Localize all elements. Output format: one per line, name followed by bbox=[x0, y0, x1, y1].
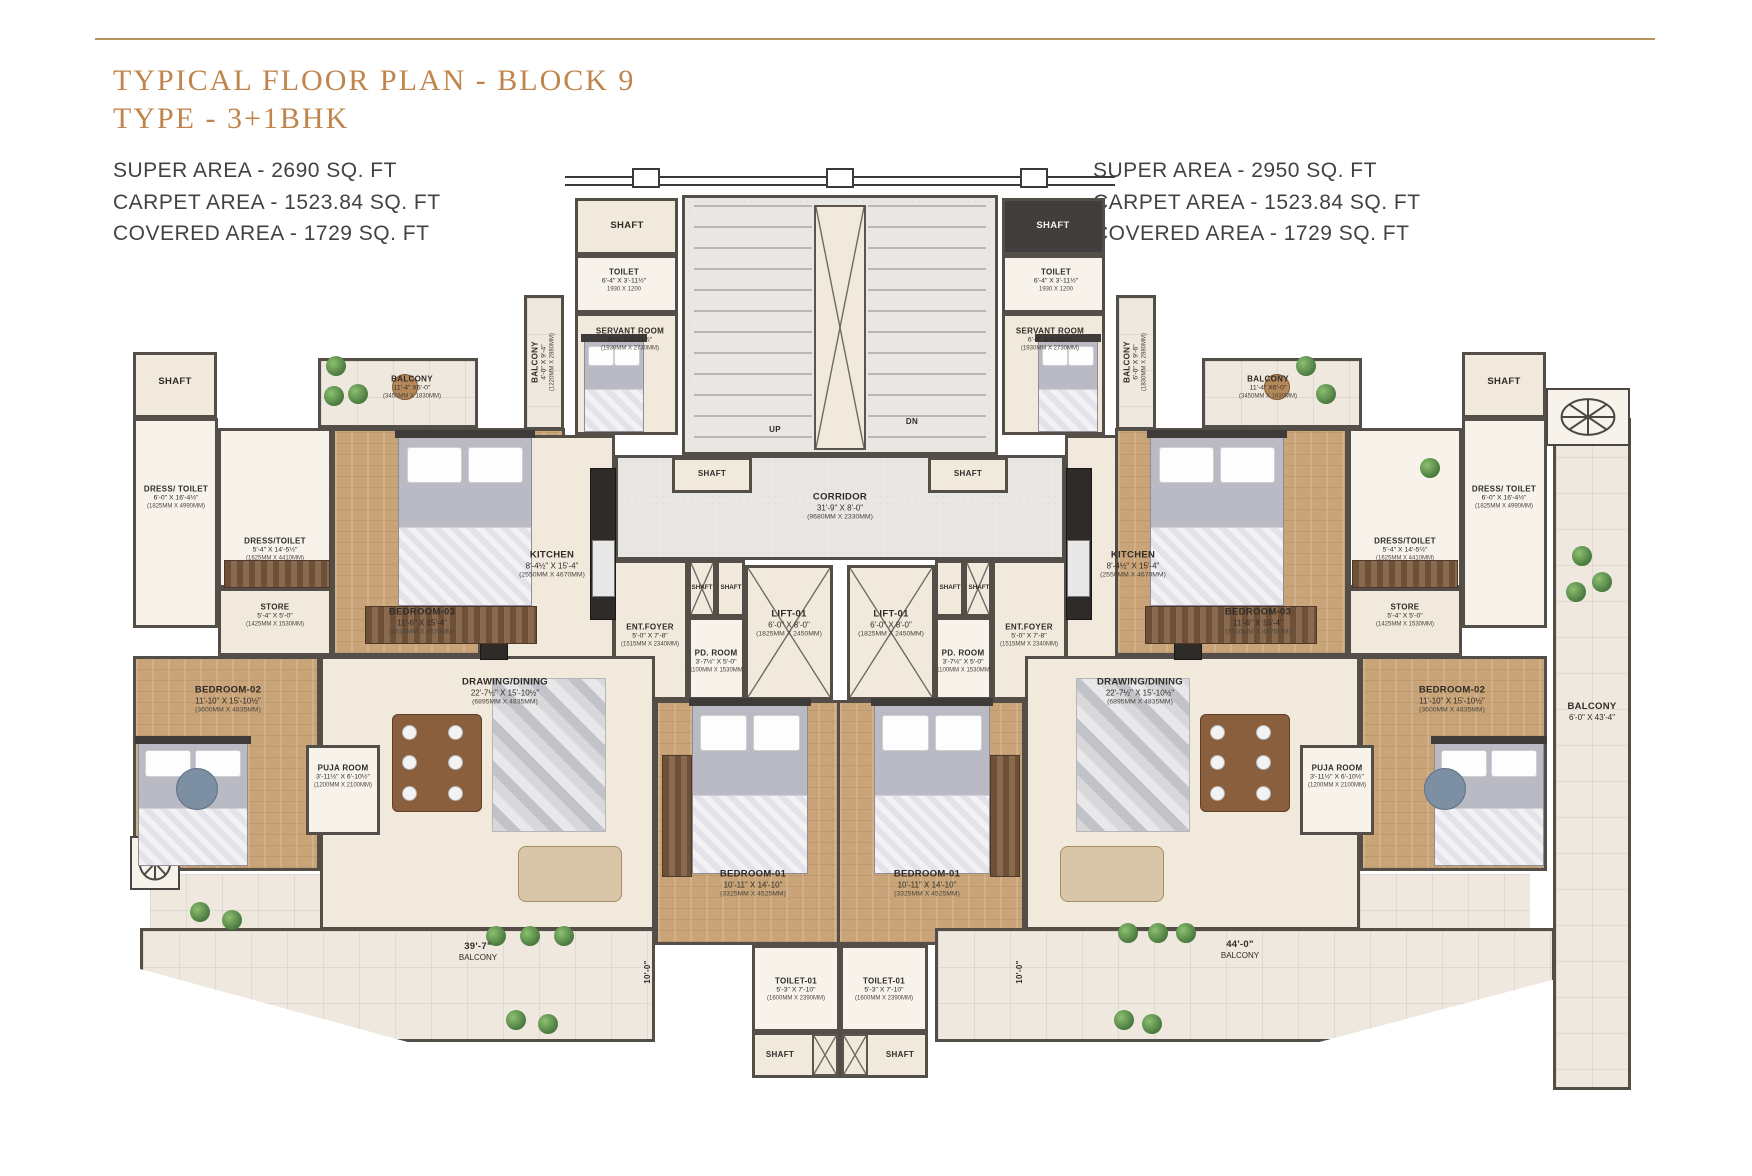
pillow bbox=[753, 715, 801, 751]
blanket bbox=[693, 795, 807, 873]
toilet-servant-right-label: TOILET6'-4" X 3'-11½"1930 X 1200 bbox=[1034, 268, 1078, 295]
bed-headboard bbox=[1431, 736, 1547, 744]
plant-icon bbox=[324, 386, 344, 406]
plant-icon bbox=[520, 926, 540, 946]
sofa bbox=[1060, 846, 1164, 902]
toilet-01-right-label: TOILET-015'-3" X 7'-10"(1600MM X 2390MM) bbox=[855, 977, 913, 1004]
shaft-cross bbox=[842, 1034, 868, 1076]
cornice-bracket bbox=[632, 168, 660, 188]
toilet-servant-left-label: TOILET6'-4" X 3'-11½"1930 X 1200 bbox=[602, 268, 646, 295]
lift-right-label: LIFT-016'-0" X 8'-0"(1825MM X 2450MM) bbox=[858, 608, 924, 639]
plate bbox=[402, 786, 417, 801]
shaft-far-right-label: SHAFT bbox=[1487, 376, 1520, 388]
dining-table bbox=[392, 714, 482, 812]
balcony-right-strip-label: BALCONY6'-0" X 43'-4" bbox=[1567, 701, 1616, 723]
shaft-far-left-label: SHAFT bbox=[158, 376, 191, 388]
shaft-corridor-left-label: SHAFT bbox=[698, 469, 726, 479]
terrace-right-dim: 44'-0"BALCONY bbox=[1221, 939, 1259, 961]
terrace-left bbox=[140, 928, 655, 1042]
ent-foyer-left-label: ENT.FOYER5'-0" X 7'-8"(1515MM X 2340MM) bbox=[621, 623, 679, 650]
plate bbox=[1210, 755, 1225, 770]
shaft-cross bbox=[812, 1034, 838, 1076]
blanket bbox=[399, 527, 531, 605]
dress-toilet-b-left-label: DRESS/TOILET5'-4" X 14'-5½"(1625MM X 441… bbox=[244, 537, 306, 564]
stove bbox=[1067, 540, 1090, 597]
plant-icon bbox=[1148, 923, 1168, 943]
bed-headboard bbox=[689, 698, 811, 706]
shaft-corridor-right-label: SHAFT bbox=[954, 469, 982, 479]
shaft-lift-right-label-b: SHAFT bbox=[969, 584, 990, 592]
plant-icon bbox=[506, 1010, 526, 1030]
servant-room-right-label: SERVANT ROOM6'-4" X 8'-11½"(1930MM X 273… bbox=[1016, 327, 1084, 354]
blanket bbox=[139, 808, 247, 865]
round-rug bbox=[176, 768, 218, 810]
plate bbox=[1256, 725, 1271, 740]
round-rug bbox=[1424, 768, 1466, 810]
wardrobe bbox=[1352, 560, 1458, 588]
terrace-left-dim: 39'-7"BALCONY bbox=[459, 941, 497, 963]
pd-room-left-label: PD. ROOM3'-7½" X 5'-0"(1100MM X 1530MM) bbox=[687, 649, 745, 676]
plant-icon bbox=[1114, 1010, 1134, 1030]
plate bbox=[1210, 786, 1225, 801]
bed-headboard bbox=[395, 430, 535, 438]
plate bbox=[1256, 786, 1271, 801]
plant-icon bbox=[190, 902, 210, 922]
servant-room-left-label: SERVANT ROOM6'-4" X 8'-11½"(1930MM X 273… bbox=[596, 327, 664, 354]
store-right-label: STORE5'-4" X 5'-0"(1425MM X 1530MM) bbox=[1376, 603, 1434, 630]
balcony-bedroom3-right-label: BALCONY11'-4" X6'-0"(3450MM X 1830MM) bbox=[1239, 375, 1297, 402]
shaft-cross bbox=[814, 205, 866, 450]
kitchen-right-label: KITCHEN8'-4½" X 15'-4"(2550MM X 4670MM) bbox=[1100, 549, 1166, 580]
shaft-bottom-left-label: SHAFT bbox=[766, 1050, 794, 1060]
bedroom-01-left-label: BEDROOM-0110'-11" X 14'-10"(3325MM X 452… bbox=[720, 868, 786, 899]
floor-plan-page: TYPICAL FLOOR PLAN - BLOCK 9 TYPE - 3+1B… bbox=[0, 0, 1752, 1176]
bed-headboard bbox=[135, 736, 251, 744]
plant-icon bbox=[222, 910, 242, 930]
blanket bbox=[1151, 527, 1283, 605]
floor-plan-canvas: CORRIDOR31'-9" X 8'-0"(9680MM X 2330MM)S… bbox=[0, 0, 1752, 1176]
dining-table bbox=[1200, 714, 1290, 812]
pillow bbox=[468, 447, 523, 483]
dress-toilet-b-right-label: DRESS/TOILET5'-4" X 14'-5½"(1625MM X 441… bbox=[1374, 537, 1436, 564]
pillow bbox=[1159, 447, 1214, 483]
wardrobe bbox=[662, 755, 692, 877]
bed bbox=[584, 340, 644, 432]
plant-icon bbox=[1572, 546, 1592, 566]
dress-toilet-a-right bbox=[1462, 418, 1547, 628]
cornice-bracket bbox=[1020, 168, 1048, 188]
pillow bbox=[882, 715, 930, 751]
pillow bbox=[1491, 750, 1536, 776]
bedroom-03-left-label: BEDROOM-0311'-6" X 15'-4"(3510MM X 4670M… bbox=[389, 606, 455, 637]
shaft-lift-left-label-a: SHAFT bbox=[692, 584, 713, 592]
plate bbox=[448, 786, 463, 801]
bed bbox=[874, 704, 990, 874]
dn-label: DN bbox=[906, 417, 918, 427]
sofa bbox=[518, 846, 622, 902]
wardrobe bbox=[224, 560, 330, 588]
bed bbox=[1150, 436, 1284, 606]
bed bbox=[1038, 340, 1098, 432]
store-left-label: STORE5'-4" X 5'-0"(1425MM X 1530MM) bbox=[246, 603, 304, 630]
dress-toilet-a-right-label: DRESS/ TOILET6'-0" X 16'-4½"(1825MM X 49… bbox=[1472, 485, 1536, 512]
stair-flight bbox=[868, 205, 986, 450]
dress-toilet-a-left bbox=[133, 418, 218, 628]
plate bbox=[402, 755, 417, 770]
plant-icon bbox=[348, 384, 368, 404]
plate bbox=[1256, 755, 1271, 770]
drawing-dining-right-label: DRAWING/DINING22'-7½" X 15'-10½"(6895MM … bbox=[1097, 676, 1183, 707]
corridor-label: CORRIDOR31'-9" X 8'-0"(9680MM X 2330MM) bbox=[807, 491, 873, 522]
bed-headboard bbox=[871, 698, 993, 706]
plant-icon bbox=[1566, 582, 1586, 602]
plant-icon bbox=[1420, 458, 1440, 478]
shaft-lift-right-label-a: SHAFT bbox=[940, 584, 961, 592]
pillow bbox=[407, 447, 462, 483]
plate bbox=[448, 755, 463, 770]
blanket bbox=[1435, 808, 1543, 865]
cornice-bracket bbox=[826, 168, 854, 188]
balcony-servant-right-label: BALCONY6'-0" X 9'-6"(1830MM X 2880MM) bbox=[1123, 333, 1150, 391]
bed bbox=[398, 436, 532, 606]
plate bbox=[448, 725, 463, 740]
toilet-01-left-label: TOILET-015'-3" X 7'-10"(1600MM X 2390MM) bbox=[767, 977, 825, 1004]
terrace-left-depth: 10'-0" bbox=[643, 960, 653, 984]
pillow bbox=[1220, 447, 1275, 483]
plate bbox=[402, 725, 417, 740]
tile-patch-right bbox=[1360, 874, 1530, 930]
wardrobe bbox=[990, 755, 1020, 877]
plant-icon bbox=[1296, 356, 1316, 376]
balcony-bedroom3-left-label: BALCONY11'-4" X6'-0"(3450MM X 1830MM) bbox=[383, 375, 441, 402]
up-label: UP bbox=[769, 425, 781, 435]
balcony-servant-left-label: BALCONY4'-0" X 9'-4"(1220MM X 2880MM) bbox=[531, 333, 558, 391]
blanket bbox=[875, 795, 989, 873]
balcony-right-strip bbox=[1553, 418, 1631, 1090]
lift-left-label: LIFT-016'-0" X 8'-0"(1825MM X 2450MM) bbox=[756, 608, 822, 639]
plate bbox=[1210, 725, 1225, 740]
bed bbox=[692, 704, 808, 874]
blanket bbox=[1039, 389, 1097, 431]
plant-icon bbox=[538, 1014, 558, 1034]
plant-icon bbox=[1316, 384, 1336, 404]
drawing-dining-left-label: DRAWING/DINING22'-7½" X 15'-10½"(6895MM … bbox=[462, 676, 548, 707]
plant-icon bbox=[554, 926, 574, 946]
bedroom-03-right-label: BEDROOM-0311'-6" X 15'-4"(3510MM X 4670M… bbox=[1225, 606, 1291, 637]
pillow bbox=[935, 715, 983, 751]
bed-headboard bbox=[1147, 430, 1287, 438]
exhaust-fan-icon bbox=[1546, 388, 1630, 446]
shaft-servant-right-label: SHAFT bbox=[1036, 220, 1069, 232]
shaft-bottom-right-label: SHAFT bbox=[886, 1050, 914, 1060]
pd-room-right-label: PD. ROOM3'-7½" X 5'-0"(1100MM X 1530MM) bbox=[934, 649, 992, 676]
blanket bbox=[585, 389, 643, 431]
bedroom-02-left-label: BEDROOM-0211'-10" X 15'-10½"(3600MM X 48… bbox=[195, 684, 261, 715]
shaft-lift-left-label-b: SHAFT bbox=[721, 584, 742, 592]
pillow bbox=[700, 715, 748, 751]
ent-foyer-right-label: ENT.FOYER5'-0" X 7'-8"(1515MM X 2340MM) bbox=[1000, 623, 1058, 650]
plant-icon bbox=[1176, 923, 1196, 943]
bedroom-02-right-label: BEDROOM-0211'-10" X 15'-10½"(3600MM X 48… bbox=[1419, 684, 1485, 715]
plant-icon bbox=[326, 356, 346, 376]
plant-icon bbox=[1592, 572, 1612, 592]
stove bbox=[592, 540, 615, 597]
bedroom-01-right-label: BEDROOM-0110'-11" X 14'-10"(3325MM X 452… bbox=[894, 868, 960, 899]
puja-room-left-label: PUJA ROOM3'-11½" X 6'-10½"(1200MM X 2100… bbox=[314, 764, 372, 791]
plant-icon bbox=[1142, 1014, 1162, 1034]
shaft-servant-left-label: SHAFT bbox=[610, 220, 643, 232]
puja-room-right-label: PUJA ROOM3'-11½" X 6'-10½"(1200MM X 2100… bbox=[1308, 764, 1366, 791]
kitchen-left-label: KITCHEN8'-4½" X 15'-4"(2550MM X 4670MM) bbox=[519, 549, 585, 580]
plant-icon bbox=[1118, 923, 1138, 943]
stair-flight bbox=[694, 205, 812, 450]
terrace-right-depth: 10'-0" bbox=[1015, 960, 1025, 984]
dress-toilet-a-left-label: DRESS/ TOILET6'-0" X 16'-4½"(1825MM X 49… bbox=[144, 485, 208, 512]
